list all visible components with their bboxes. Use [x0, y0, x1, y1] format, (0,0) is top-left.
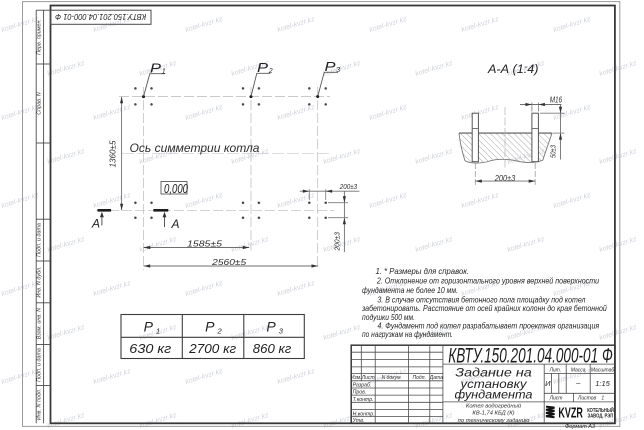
svg-text:P: P: [144, 318, 154, 334]
svg-text:2700 кг: 2700 кг: [188, 341, 237, 356]
svg-text:Подп. и дата: Подп. и дата: [37, 223, 43, 257]
svg-text:Ось симметрии котла: Ось симметрии котла: [130, 141, 260, 155]
svg-text:P: P: [205, 318, 215, 334]
svg-text:по техническому заданию: по техническому заданию: [458, 418, 530, 424]
svg-text:Пров.: Пров.: [353, 390, 367, 396]
svg-text:860 кг: 860 кг: [253, 341, 292, 356]
svg-text:200±3: 200±3: [339, 182, 358, 191]
svg-text:Масса: Масса: [571, 367, 586, 373]
svg-text:P: P: [257, 60, 268, 75]
svg-text:фундамента не более 10 мм.: фундамента не более 10 мм.: [362, 286, 458, 295]
svg-text:N докум.: N докум.: [382, 375, 402, 381]
svg-text:Перв. примен.: Перв. примен.: [37, 19, 43, 55]
svg-text:Формат А3: Формат А3: [565, 424, 596, 430]
svg-text:KVZR: KVZR: [558, 404, 583, 421]
svg-text:Взам. инв. N: Взам. инв. N: [37, 308, 43, 340]
svg-text:1: 1: [162, 69, 166, 76]
svg-text:200±3: 200±3: [494, 174, 516, 183]
svg-text:КВ-1,74 КБД (К): КВ-1,74 КБД (К): [472, 410, 514, 416]
svg-text:Масштаб: Масштаб: [591, 367, 615, 373]
svg-text:фундамента: фундамента: [455, 390, 533, 402]
svg-text:0,000: 0,000: [164, 182, 188, 196]
svg-text:Утв.: Утв.: [353, 418, 365, 424]
svg-text:2: 2: [268, 68, 273, 75]
svg-text:2560±5: 2560±5: [211, 258, 247, 267]
svg-text:Лист: Лист: [549, 396, 563, 402]
svg-text:3: 3: [336, 67, 340, 74]
svg-text:2. Отклонение от горизонтально: 2. Отклонение от горизонтального уровня …: [376, 276, 599, 285]
svg-text:Дата: Дата: [429, 375, 443, 381]
svg-text:4. Фундамент под котел разраба: 4. Фундамент под котел разрабатывает про…: [378, 322, 600, 331]
svg-text:Справ. N: Справ. N: [37, 92, 43, 115]
svg-text:КВТУ.150.201.04.000-01 Ф: КВТУ.150.201.04.000-01 Ф: [448, 344, 613, 367]
svg-text:подушки 500 мм.: подушки 500 мм.: [362, 313, 415, 322]
svg-text:1: 1: [156, 326, 160, 335]
svg-text:Т.контр.: Т.контр.: [353, 397, 374, 403]
svg-text:Н.контр.: Н.контр.: [353, 411, 375, 417]
svg-text:630 кг: 630 кг: [129, 341, 172, 356]
svg-text:А-А (1:4): А-А (1:4): [487, 62, 539, 76]
svg-text:1585±5: 1585±5: [187, 240, 223, 249]
svg-text:2: 2: [217, 326, 223, 335]
svg-text:200±3: 200±3: [333, 231, 342, 251]
svg-text:P: P: [325, 59, 336, 74]
svg-text:по нагрузкам на фундамент.: по нагрузкам на фундамент.: [362, 330, 453, 339]
svg-text:Инв. N подл.: Инв. N подл.: [37, 389, 43, 421]
svg-text:Лит.: Лит.: [548, 367, 561, 373]
svg-text:КВТУ.150.201.04.000-01 Ф: КВТУ.150.201.04.000-01 Ф: [55, 12, 146, 22]
svg-text:ЗАВОД, РЭП: ЗАВОД, РЭП: [588, 413, 614, 419]
svg-text:50±3: 50±3: [549, 144, 558, 158]
svg-text:–: –: [575, 379, 581, 388]
svg-text:Подп. и дата: Подп. и дата: [37, 348, 43, 382]
svg-text:забетонировать. Расстояние от: забетонировать. Расстояние от осей крайн…: [361, 304, 607, 313]
svg-text:1. * Размеры для справок.: 1. * Размеры для справок.: [376, 267, 470, 276]
svg-text:Инв. N дубл.: Инв. N дубл.: [37, 266, 43, 297]
svg-text:P: P: [150, 61, 161, 76]
svg-text:Разраб.: Разраб.: [353, 383, 372, 389]
svg-text:Листов: Листов: [577, 396, 597, 402]
svg-text:A: A: [171, 217, 180, 231]
svg-text:1:15: 1:15: [595, 379, 610, 388]
svg-text:1360±5: 1360±5: [108, 140, 117, 167]
svg-text:Котел водогрейный: Котел водогрейный: [466, 402, 522, 409]
svg-text:Лист: Лист: [361, 375, 375, 381]
svg-text:A: A: [91, 217, 100, 231]
svg-text:P: P: [266, 318, 276, 334]
svg-text:И: И: [545, 379, 551, 388]
svg-text:М16: М16: [550, 96, 563, 105]
svg-text:3. В случае отсутствия бетонно: 3. В случае отсутствия бетонного пола пл…: [377, 295, 585, 304]
svg-text:Подп.: Подп.: [413, 375, 426, 381]
svg-text:Изм.: Изм.: [351, 375, 362, 381]
svg-text:1: 1: [601, 396, 604, 402]
